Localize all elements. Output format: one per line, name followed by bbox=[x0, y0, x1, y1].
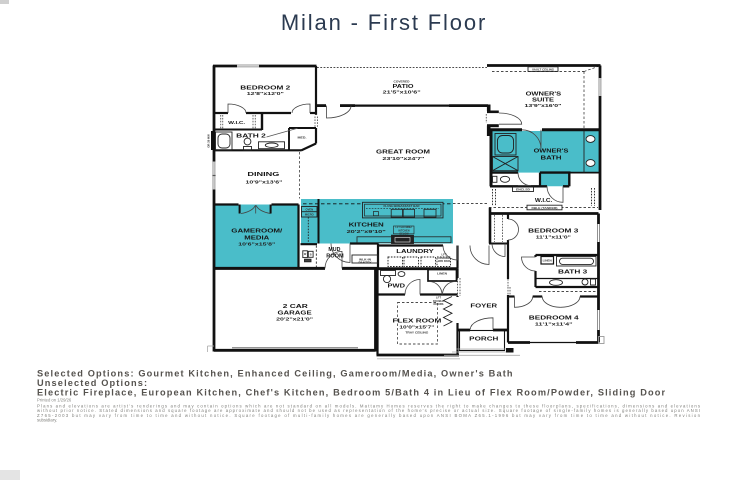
svg-text:W.I.C.: W.I.C. bbox=[535, 198, 553, 204]
svg-text:BELOW: BELOW bbox=[400, 232, 409, 236]
svg-text:OVEN: OVEN bbox=[305, 208, 313, 212]
svg-text:B: B bbox=[310, 254, 312, 257]
svg-text:PANTRY: PANTRY bbox=[359, 261, 372, 265]
svg-text:Milan - First Floor: Milan - First Floor bbox=[281, 10, 487, 35]
svg-text:12'8"x12'0": 12'8"x12'0" bbox=[247, 91, 284, 96]
svg-text:ROOM: ROOM bbox=[326, 254, 344, 260]
svg-text:Electric Fireplace, European K: Electric Fireplace, European Kitchen, Ch… bbox=[37, 387, 666, 397]
svg-text:LAUNDRY: LAUNDRY bbox=[396, 249, 434, 255]
svg-text:11'1"x11'4": 11'1"x11'4" bbox=[535, 322, 573, 327]
svg-text:10'0"x15'7": 10'0"x15'7" bbox=[399, 325, 434, 330]
svg-text:DINING: DINING bbox=[247, 172, 279, 178]
svg-text:FOYER: FOYER bbox=[470, 304, 497, 310]
svg-text:13'9"x16'0": 13'9"x16'0" bbox=[525, 103, 562, 108]
svg-text:DBLE (TANDEM): DBLE (TANDEM) bbox=[532, 206, 558, 210]
svg-text:ENCLSD: ENCLSD bbox=[516, 188, 530, 192]
svg-text:Selected Options: Gourmet Kitc: Selected Options: Gourmet Kitchen, Enhan… bbox=[37, 368, 514, 378]
svg-text:VAULT CEILING: VAULT CEILING bbox=[532, 68, 555, 72]
svg-text:GAMEROOM/: GAMEROOM/ bbox=[231, 229, 283, 235]
svg-text:23'10"x24'7": 23'10"x24'7" bbox=[382, 156, 424, 161]
svg-text:BATH: BATH bbox=[541, 155, 562, 161]
svg-text:MICRO: MICRO bbox=[305, 213, 314, 217]
svg-text:OR 26 HW: OR 26 HW bbox=[207, 134, 211, 148]
svg-text:10'6"x15'8": 10'6"x15'8" bbox=[238, 242, 275, 247]
svg-text:OWNER'S: OWNER'S bbox=[534, 148, 569, 154]
svg-text:Unselected Options:: Unselected Options: bbox=[37, 378, 148, 388]
svg-text:COVERED: COVERED bbox=[394, 80, 410, 84]
svg-text:DOORS: DOORS bbox=[434, 302, 444, 306]
svg-text:20'2"x21'0": 20'2"x21'0" bbox=[276, 316, 313, 321]
svg-text:10'9"x13'6": 10'9"x13'6" bbox=[246, 180, 283, 185]
svg-text:GREAT ROOM: GREAT ROOM bbox=[376, 150, 430, 156]
svg-text:BATH 2: BATH 2 bbox=[236, 134, 266, 140]
svg-text:subsidiary.: subsidiary. bbox=[37, 418, 57, 423]
svg-text:Printed on 1/29/26: Printed on 1/29/26 bbox=[37, 398, 72, 403]
svg-text:LINEN: LINEN bbox=[437, 272, 447, 276]
svg-text:MEDIA: MEDIA bbox=[244, 235, 269, 241]
svg-text:W/D PAIR: W/D PAIR bbox=[438, 259, 450, 263]
svg-text:Z765-2003 but may vary from ti: Z765-2003 but may vary from time to time… bbox=[37, 413, 701, 418]
svg-text:BATH 3: BATH 3 bbox=[558, 269, 587, 275]
svg-text:2 CAR: 2 CAR bbox=[283, 304, 308, 310]
svg-text:TRAY CEILING: TRAY CEILING bbox=[405, 331, 428, 335]
svg-text:MUD: MUD bbox=[328, 247, 340, 253]
svg-text:FLUSH BREAKFAST BAR: FLUSH BREAKFAST BAR bbox=[384, 204, 420, 208]
svg-text:21'5"x10'6": 21'5"x10'6" bbox=[383, 90, 421, 95]
svg-text:MED.: MED. bbox=[298, 136, 307, 140]
svg-text:PORCH: PORCH bbox=[469, 336, 498, 342]
svg-text:PWD: PWD bbox=[388, 284, 406, 290]
svg-text:KITCHEN: KITCHEN bbox=[349, 223, 384, 229]
svg-text:LINEN: LINEN bbox=[543, 259, 552, 263]
svg-text:11'1"x11'0": 11'1"x11'0" bbox=[536, 235, 571, 240]
svg-text:20'2"x9'10": 20'2"x9'10" bbox=[347, 229, 386, 234]
svg-text:FLEX ROOM: FLEX ROOM bbox=[393, 319, 442, 325]
svg-text:W.I.C.: W.I.C. bbox=[228, 120, 245, 125]
svg-text:BEDROOM 3: BEDROOM 3 bbox=[528, 228, 578, 234]
